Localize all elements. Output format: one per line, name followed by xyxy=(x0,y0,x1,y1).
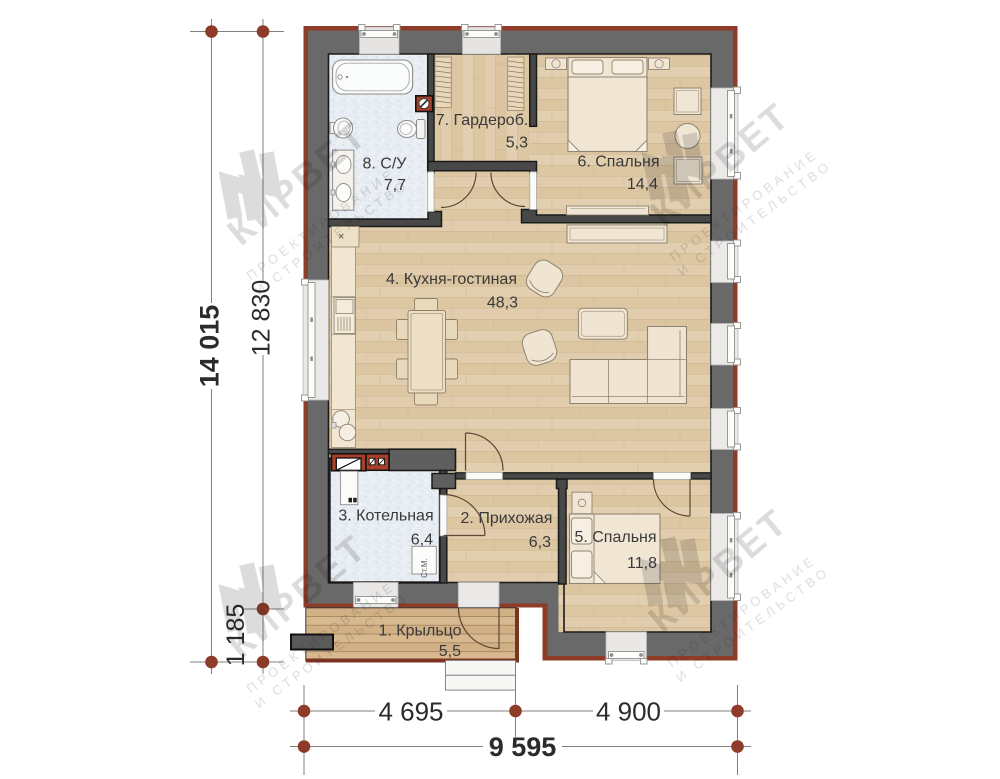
svg-text:6,4: 6,4 xyxy=(411,532,433,549)
svg-text:5,3: 5,3 xyxy=(506,135,528,152)
svg-text:5,5: 5,5 xyxy=(439,643,461,660)
svg-text:5. Спальня: 5. Спальня xyxy=(574,529,656,546)
svg-text:1. Крыльцо: 1. Крыльцо xyxy=(378,623,461,640)
svg-text:4 900: 4 900 xyxy=(596,697,661,727)
svg-text:4. Кухня-гостиная: 4. Кухня-гостиная xyxy=(386,271,517,288)
svg-text:6,3: 6,3 xyxy=(529,534,551,551)
svg-text:2. Прихожая: 2. Прихожая xyxy=(461,510,553,527)
svg-text:Ст.М.: Ст.М. xyxy=(420,558,429,578)
svg-text:9 595: 9 595 xyxy=(489,732,557,762)
svg-text:3. Котельная: 3. Котельная xyxy=(338,508,433,525)
svg-text:7. Гардероб.: 7. Гардероб. xyxy=(436,112,529,129)
svg-text:48,3: 48,3 xyxy=(487,295,518,312)
svg-text:14 015: 14 015 xyxy=(195,305,225,388)
svg-text:4 695: 4 695 xyxy=(378,697,443,727)
